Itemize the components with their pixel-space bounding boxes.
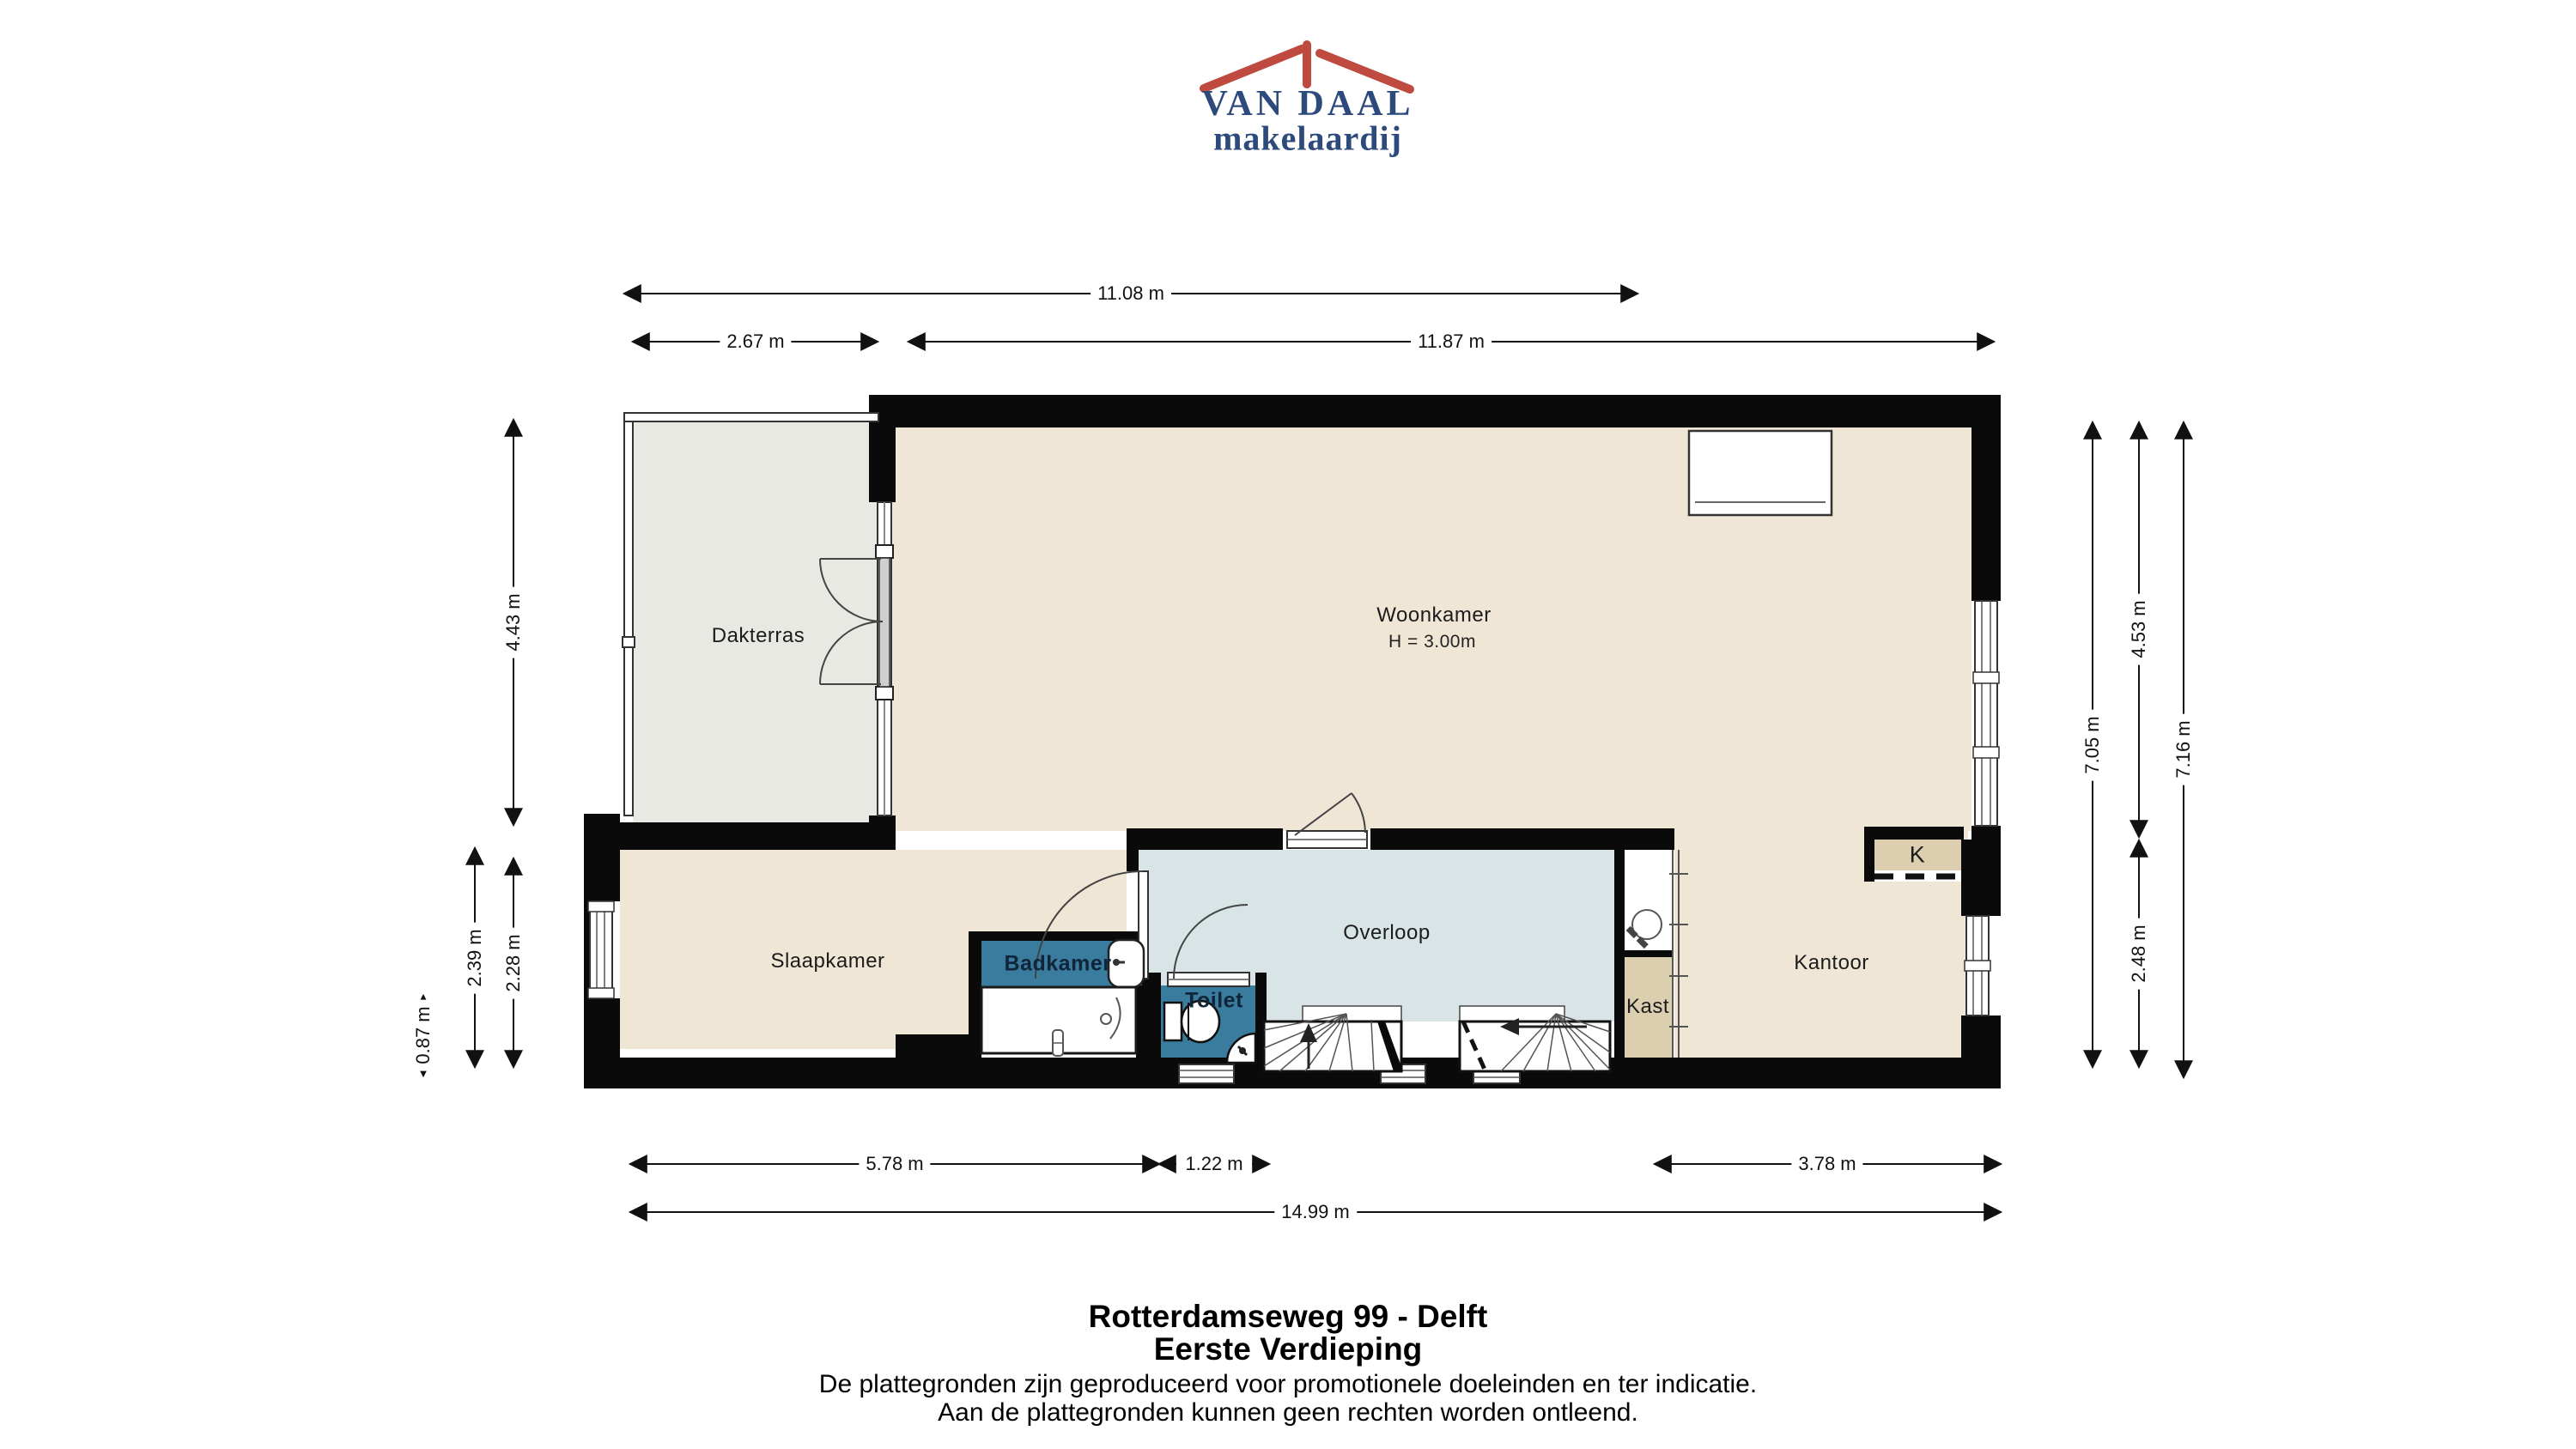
stair-landing-edge-right — [1460, 1006, 1564, 1022]
dim-bottom-bedroom: 5.78 m — [859, 1153, 930, 1175]
stairs-down — [1460, 1014, 1610, 1071]
room-label-slaapkamer: Slaapkamer — [770, 949, 884, 973]
bathtub — [1109, 940, 1144, 987]
dim-top-terrace: 2.67 m — [720, 330, 791, 353]
footer-floor: Eerste Verdieping — [0, 1331, 2576, 1367]
terrace-glass-wall — [876, 502, 893, 815]
window-bedroom-left — [588, 901, 614, 998]
room-label-woonkamer-height: H = 3.00m — [1388, 632, 1476, 652]
room-label-badkamer: Badkamer — [1005, 952, 1112, 977]
brand-tagline: makelaardij — [1213, 118, 1402, 159]
stairs-up — [1264, 1014, 1403, 1071]
dim-left-terrace: 4.43 m — [502, 586, 525, 658]
room-label-woonkamer: Woonkamer — [1376, 603, 1491, 627]
dim-right-lower: 2.48 m — [2128, 918, 2150, 989]
shower-area — [981, 987, 1136, 1056]
room-label-overloop: Overloop — [1343, 921, 1430, 945]
footer-address: Rotterdamseweg 99 - Delft — [0, 1299, 2576, 1335]
boiler-closet — [1625, 850, 1672, 950]
dim-bottom-toilet: 1.22 m — [1178, 1153, 1249, 1175]
footer-disclaimer-line1: De plattegronden zijn geproduceerd voor … — [0, 1370, 2576, 1399]
room-label-kantoor: Kantoor — [1794, 951, 1869, 975]
dim-left-bedroom-inner: 2.28 m — [502, 927, 525, 998]
room-label-dakterras: Dakterras — [712, 624, 805, 648]
room-label-kast: Kast — [1626, 995, 1669, 1019]
dim-right-total: 7.16 m — [2172, 713, 2195, 785]
floorplan-page: VAN DAAL makelaardij Dakterras Woonkamer… — [0, 0, 2576, 1449]
dormer-window — [1689, 431, 1832, 515]
room-label-kitchenette: K — [1910, 842, 1926, 869]
dakterras-floor — [633, 421, 878, 824]
dim-top-living: 11.87 m — [1411, 330, 1492, 353]
window-living-right — [1973, 601, 1999, 826]
dim-right-inner: 7.05 m — [2081, 709, 2104, 780]
window-office-right — [1965, 916, 1990, 1016]
footer-disclaimer-line2: Aan de plattegronden kunnen geen rechten… — [0, 1398, 2576, 1428]
room-label-toilet: Toilet — [1185, 989, 1243, 1014]
window-toilet-bottom — [1179, 1064, 1234, 1083]
dim-right-upper: 4.53 m — [2128, 593, 2150, 664]
dim-bottom-office: 3.78 m — [1791, 1153, 1862, 1175]
dim-left-bay: 0.87 m — [412, 999, 434, 1070]
dim-top-total: 11.08 m — [1091, 282, 1171, 305]
dim-left-bedroom-outer: 2.39 m — [464, 922, 486, 993]
kitchenette-counter-dashes — [1874, 870, 1961, 882]
dim-bottom-total: 14.99 m — [1274, 1201, 1357, 1223]
